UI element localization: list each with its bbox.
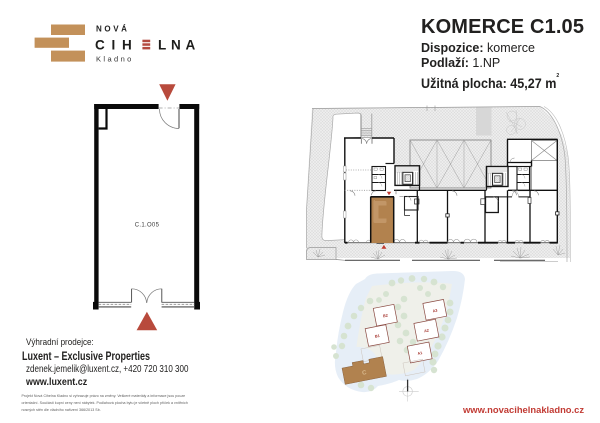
svg-text:Kladno: Kladno	[96, 55, 134, 64]
svg-text:H: H	[122, 38, 132, 53]
svg-text:N: N	[171, 38, 181, 53]
svg-text:NOVÁ: NOVÁ	[96, 25, 130, 34]
svg-text:C.1.O05: C.1.O05	[135, 223, 160, 229]
svg-text:C: C	[95, 38, 105, 53]
svg-text:L: L	[158, 38, 166, 53]
svg-text:A: A	[186, 38, 196, 53]
svg-text:I: I	[112, 38, 116, 53]
